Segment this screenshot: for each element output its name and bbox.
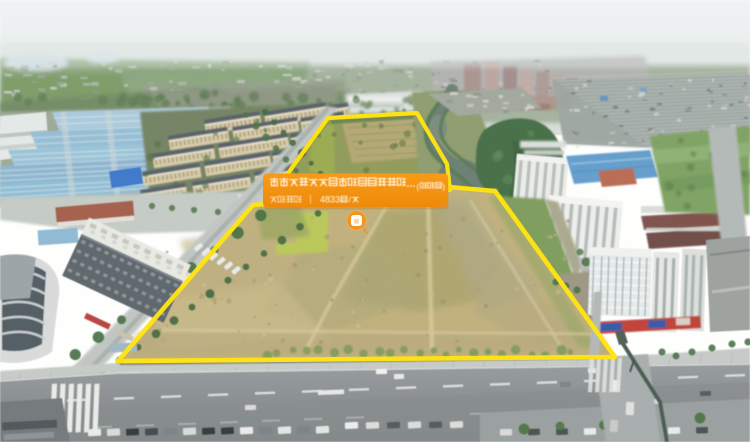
svg-text:4833: 4833 [320,195,340,205]
svg-text:): ) [443,183,446,192]
svg-text:(: ( [417,183,420,192]
